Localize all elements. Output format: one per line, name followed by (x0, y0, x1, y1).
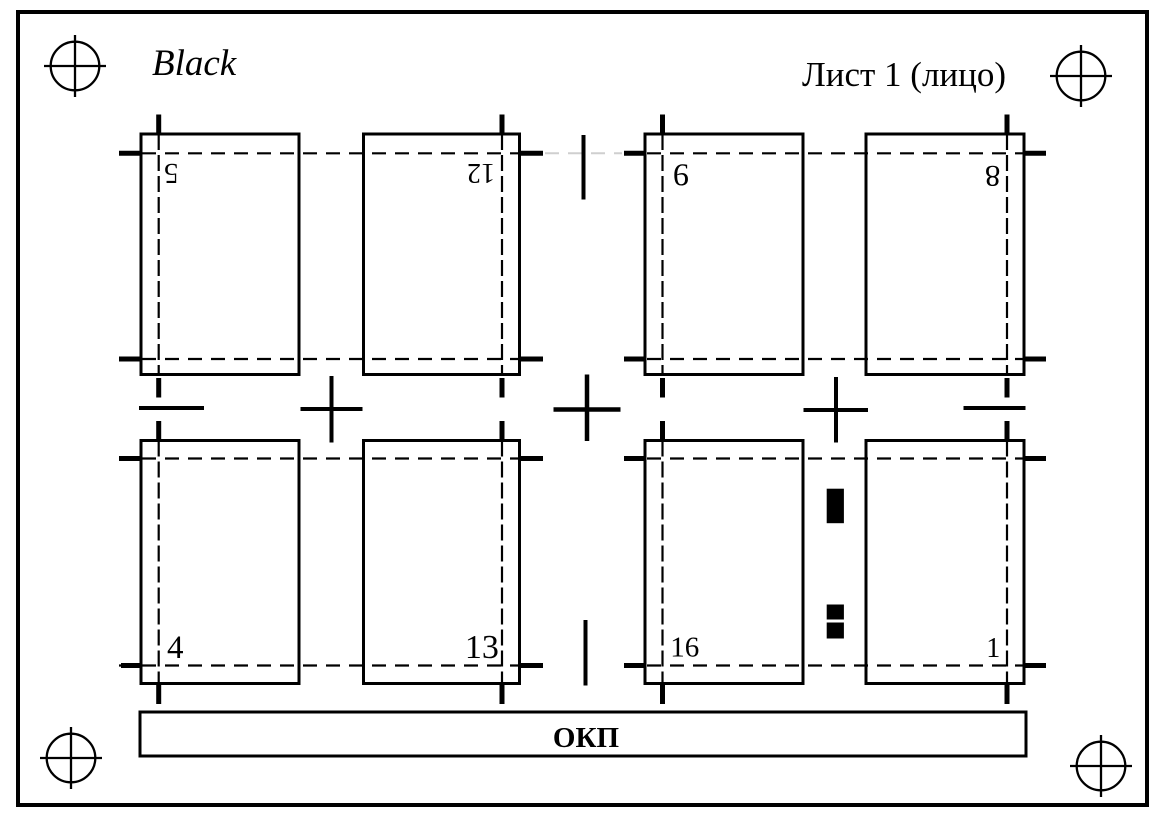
svg-text:5: 5 (164, 157, 179, 189)
svg-text:Лист 1 (лицо): Лист 1 (лицо) (802, 55, 1006, 94)
svg-text:9: 9 (673, 157, 689, 193)
svg-text:12: 12 (467, 157, 495, 188)
svg-text:8: 8 (985, 159, 1001, 194)
svg-text:Black: Black (152, 43, 237, 84)
svg-text:ОКП: ОКП (553, 722, 619, 754)
svg-text:1: 1 (986, 633, 1000, 664)
svg-text:16: 16 (670, 632, 699, 664)
svg-text:4: 4 (167, 630, 184, 666)
svg-text:13: 13 (465, 629, 499, 666)
